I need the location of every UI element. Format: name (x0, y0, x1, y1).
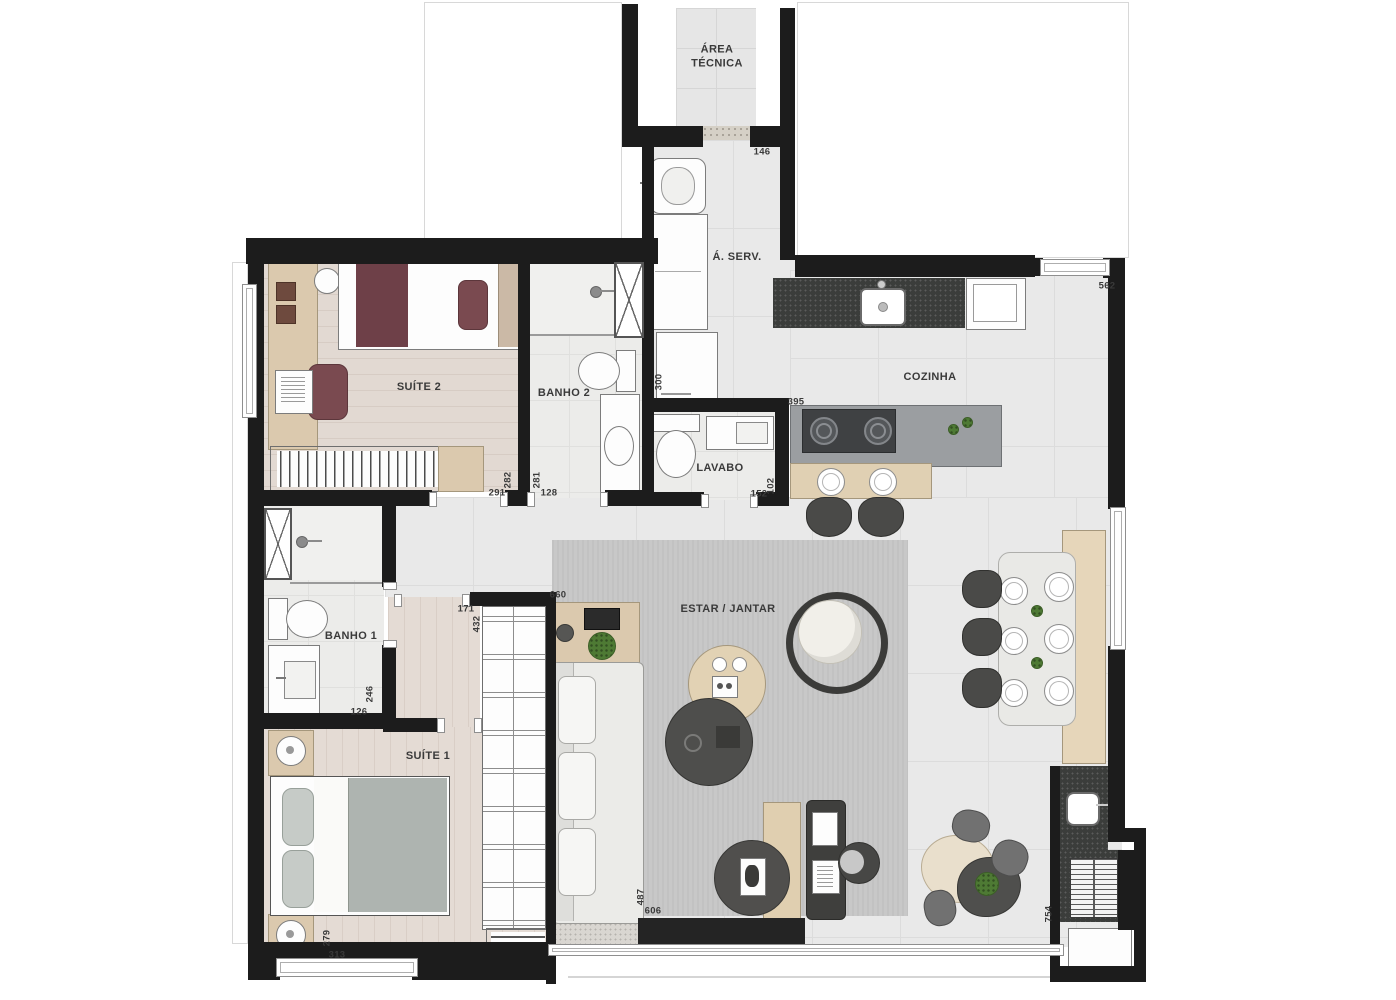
dimension-label: 282 (503, 472, 514, 489)
dimension-label: 102 (766, 478, 777, 495)
dimension-label: 281 (532, 472, 543, 489)
room-label-lavabo: LAVABO (696, 461, 743, 475)
room-label-estar-jantar: ESTAR / JANTAR (680, 602, 775, 616)
dimension-label: 146 (754, 147, 771, 158)
dimension-label: 487 (636, 889, 647, 906)
room-label-a-serv: Á. SERV. (712, 250, 761, 264)
dimension-label: 126 (351, 707, 368, 718)
dimension-label: 300 (654, 374, 665, 391)
dimension-label: 246 (365, 686, 376, 703)
dimension-label: 279 (322, 930, 333, 947)
dimension-label: 754 (1044, 906, 1055, 923)
floor-plan: ÁREA TÉCNICAÁ. SERV.COZINHASUÍTE 2BANHO … (0, 0, 1396, 1000)
labels-layer: ÁREA TÉCNICAÁ. SERV.COZINHASUÍTE 2BANHO … (0, 0, 1396, 1000)
dimension-label: 171 (458, 604, 475, 615)
dimension-label: 660 (550, 590, 567, 601)
dimension-label: 606 (645, 906, 662, 917)
room-label-area-tecnica: ÁREA TÉCNICA (682, 43, 752, 72)
dimension-label: 562 (1099, 281, 1116, 292)
room-label-suite-2: SUÍTE 2 (397, 380, 441, 394)
dimension-label: 395 (788, 397, 805, 408)
room-label-cozinha: COZINHA (904, 370, 957, 384)
room-label-banho-1: BANHO 1 (325, 629, 377, 643)
dimension-label: 291 (489, 488, 506, 499)
room-label-suite-1: SUÍTE 1 (406, 749, 450, 763)
dimension-label: 432 (472, 616, 483, 633)
room-label-banho-2: BANHO 2 (538, 386, 590, 400)
dimension-label: 128 (541, 488, 558, 499)
dimension-label: 313 (329, 950, 346, 961)
